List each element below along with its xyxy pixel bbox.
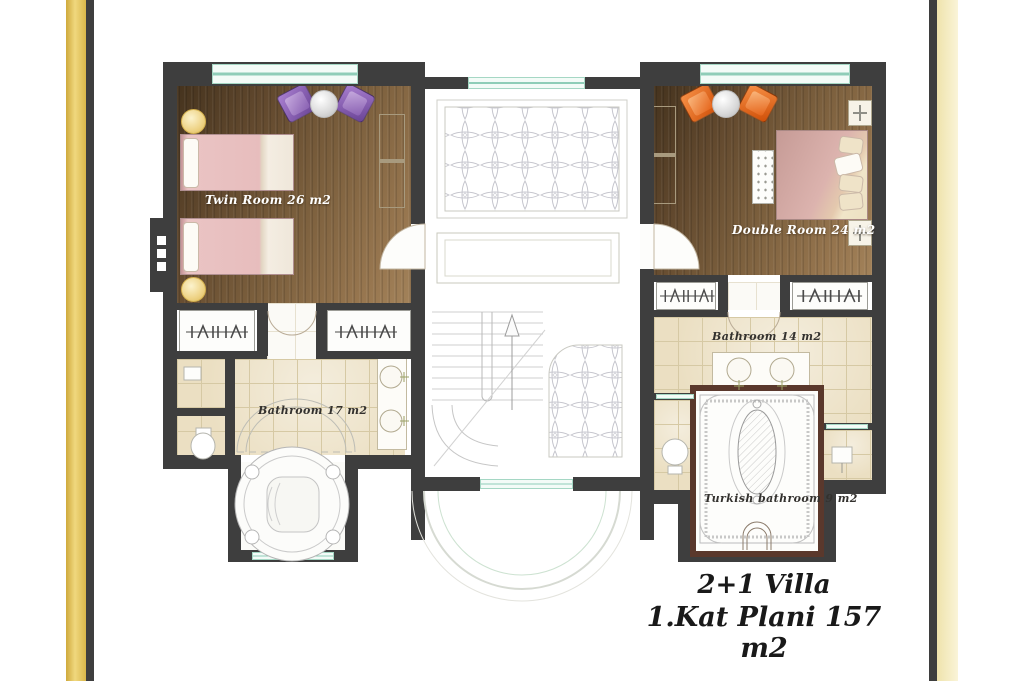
staircase-icon <box>432 312 545 466</box>
sink-icon <box>727 358 794 390</box>
stair-tile-patch <box>549 345 622 457</box>
plan-title: 2+1 Villa 1.Kat Plani 157 m2 <box>634 570 894 664</box>
bathroom-left-label: Bathroom 17 m2 <box>258 404 367 417</box>
turkish-bath-ornament <box>700 395 814 550</box>
twin-room-label: Twin Room 26 m2 <box>205 193 331 207</box>
bath-fixture <box>832 447 852 473</box>
bath-fixture <box>184 367 201 380</box>
turkish-bathroom-label: Turkish bathroom 9 m2 <box>704 492 858 505</box>
plan-title-line2: 1.Kat Plani 157 m2 <box>634 602 894 664</box>
toilet-icon <box>191 428 215 459</box>
bathroom-right-label: Bathroom 14 m2 <box>712 330 821 343</box>
double-room-label: Double Room 24 m2 <box>732 223 875 237</box>
hall-tile-pattern <box>445 107 619 211</box>
toilet-icon <box>662 439 688 474</box>
jacuzzi-icon <box>235 447 349 561</box>
floor-plan-page: Twin Room 26 m2 Double Room 24 m2 Bathro… <box>0 0 1024 681</box>
sink-icon <box>380 366 409 432</box>
plan-title-line1: 2+1 Villa <box>634 570 894 600</box>
balcony-arcs <box>412 491 632 601</box>
